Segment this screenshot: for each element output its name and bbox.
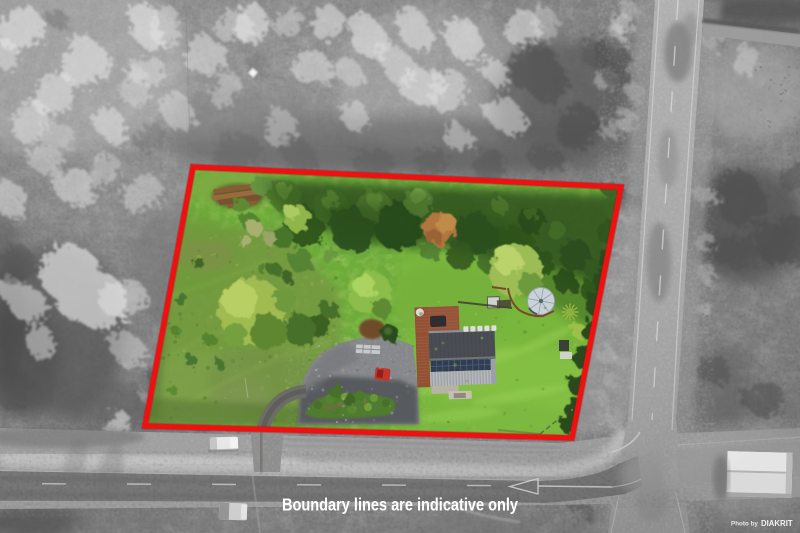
svg-text:DIAKRIT: DIAKRIT [761, 519, 793, 528]
svg-text:Photo by: Photo by [731, 521, 758, 528]
svg-text:Boundary lines are indicative: Boundary lines are indicative only [282, 495, 518, 515]
